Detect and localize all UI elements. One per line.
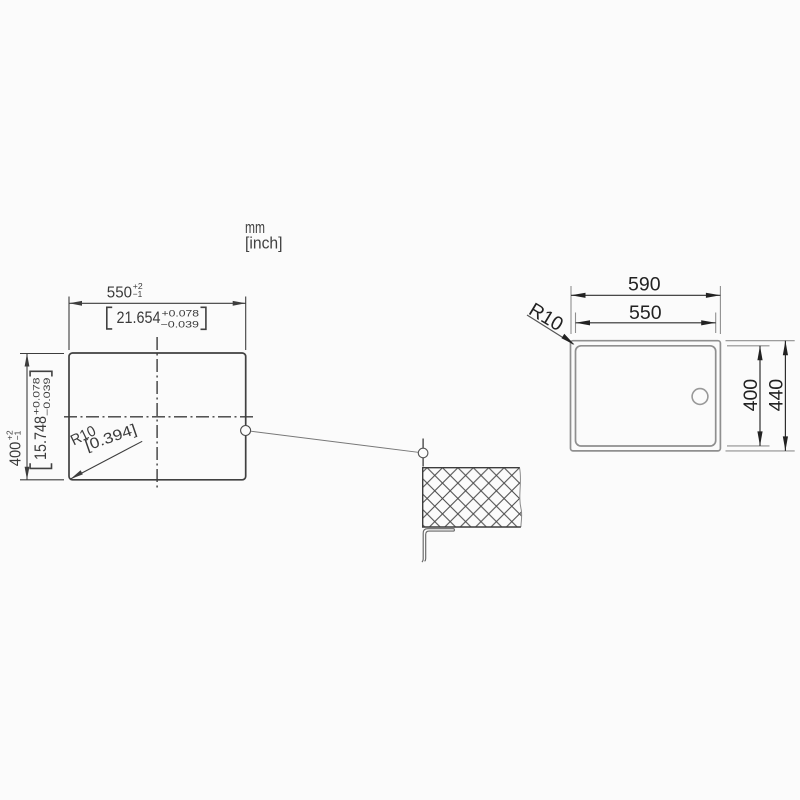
svg-text:15.748: 15.748 [31,416,50,460]
svg-text:+0.078: +0.078 [31,378,41,416]
svg-text:−0.039: −0.039 [161,319,200,329]
svg-text:[inch]: [inch] [245,234,283,253]
svg-text:400: 400 [740,379,762,412]
svg-text:−1: −1 [133,289,143,299]
svg-text:550: 550 [629,302,662,324]
svg-text:550: 550 [107,284,132,301]
svg-text:−1: −1 [13,430,23,440]
svg-text:+0.078: +0.078 [162,309,200,319]
svg-text:21.654: 21.654 [117,308,161,327]
svg-text:440: 440 [765,379,787,412]
svg-text:400: 400 [8,442,25,467]
svg-text:590: 590 [628,274,661,296]
svg-text:−0.039: −0.039 [42,378,52,417]
